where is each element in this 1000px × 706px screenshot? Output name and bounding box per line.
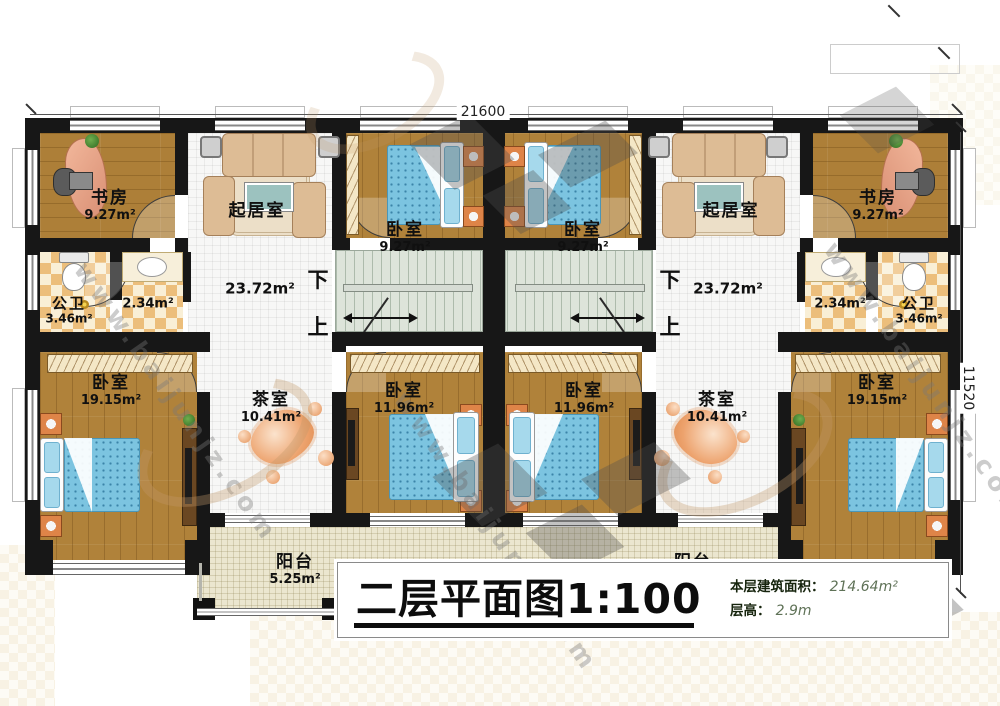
study-name: 书房 (91, 189, 129, 209)
wash-label: 2.34m² (122, 298, 173, 313)
wash-area: 2.34m² (814, 298, 865, 313)
wash-area: 2.34m² (122, 298, 173, 313)
toilet-tank (899, 252, 929, 263)
window-sill-top-living (683, 106, 773, 118)
tea-stool-a (737, 430, 750, 443)
tea-stool-a (238, 430, 251, 443)
toilet-bowl (62, 263, 86, 291)
study-plant (85, 134, 99, 148)
tea-room-area: 10.41m² (241, 410, 301, 425)
floor-area-value: 214.64m² (830, 579, 898, 595)
bedroom-mid-tv (348, 420, 355, 466)
window-sill-top-living (215, 106, 305, 118)
window-bedroom-mid-bottom (523, 516, 618, 526)
tea-stool-b (666, 402, 680, 416)
bedroom-small-nightstand-b (504, 206, 525, 227)
study-monitor (895, 172, 919, 190)
wall-bedroom-mid-bottom-a (618, 513, 656, 527)
study-label: 书房 9.27m² (852, 189, 903, 223)
floor-height-row: 层高： 2.9m (730, 599, 812, 619)
tea-room-name: 茶室 (698, 391, 736, 411)
bedroom-mid-tv (633, 420, 640, 466)
bedroom-small-nightstand-b (463, 206, 484, 227)
living-sofa-right (292, 182, 326, 238)
floor-height-label: 层高： (730, 603, 771, 619)
wall-wash-stub (797, 252, 805, 302)
bedroom-mid-wardrobe (350, 354, 480, 373)
window-bedroom-large-bottom (53, 563, 185, 575)
living-label: 起居室 (229, 202, 286, 222)
living-sofa-back (222, 133, 316, 177)
wall-bedroom-large-corner-l (25, 540, 53, 575)
stair-arrow-line (351, 317, 409, 319)
tea-room-area: 10.41m² (687, 410, 747, 425)
wall-center-party (494, 118, 505, 527)
living-side-table-left (200, 136, 222, 158)
wall-study-inner-b (800, 238, 813, 252)
dimension-top-value: 21600 (457, 104, 510, 120)
stair-down-text: 下 (308, 268, 329, 292)
window-sill-top-study (70, 106, 160, 118)
wall-tea-bottom-a (197, 513, 225, 527)
wall-below-stair (332, 332, 494, 346)
bedroom-mid-name: 卧室 (385, 382, 423, 402)
wall-center-party (483, 118, 494, 527)
bedroom-large-wardrobe (47, 354, 193, 373)
window-top-living (215, 120, 305, 131)
stair-up-text: 上 (308, 315, 329, 339)
bedroom-mid-name: 卧室 (565, 382, 603, 402)
wall-bedroom-mid-side-a (332, 346, 346, 352)
bedroom-small-nightstand-a (463, 146, 484, 167)
wash-sink (821, 257, 851, 277)
stair-up-text: 上 (660, 315, 681, 339)
living-name: 起居室 (229, 202, 286, 222)
wall-bedroom-mid-side-a (642, 346, 656, 352)
floor-plan-canvas: 书房 9.27m² 起居室 23.72m² 卧室 9.27m² 公卫 3.46m… (0, 0, 1000, 706)
wall-bedroom-mid-side-b (332, 392, 346, 513)
bath-area: 3.46m² (895, 313, 942, 327)
study-plant (889, 134, 903, 148)
tea-room-label: 茶室 10.41m² (687, 391, 747, 425)
bedroom-mid-label: 卧室 11.96m² (374, 382, 434, 416)
wall-wash-stub (183, 252, 191, 302)
tea-stool-d (266, 470, 280, 484)
balcony-name: 阳台 (276, 553, 314, 573)
bedroom-mid-wardrobe (508, 354, 638, 373)
stair-up-label: 上 (308, 315, 329, 339)
floor-area-label: 本层建筑面积： (730, 579, 825, 595)
bedroom-small-wardrobe (629, 135, 642, 235)
window-top-study (828, 120, 918, 131)
wall-above-stair-a (332, 238, 350, 250)
bedroom-large-headboard (924, 438, 948, 512)
drawing-title: 二层平面图1:100 (356, 565, 702, 625)
living-side-table-right (318, 136, 340, 158)
wall-study-inner-b (175, 238, 188, 252)
study-label: 书房 9.27m² (84, 189, 135, 223)
bath-label: 公卫 3.46m² (895, 295, 942, 326)
tea-room-label: 茶室 10.41m² (241, 391, 301, 425)
balcony-label: 阳台 5.25m² (269, 553, 320, 587)
bedroom-large-name: 卧室 (858, 374, 896, 394)
bedroom-large-plant (183, 414, 195, 426)
living-area-label: 23.72m² (693, 280, 763, 297)
window-top-living (683, 120, 773, 131)
bedroom-small-name: 卧室 (386, 221, 424, 241)
bedroom-mid-headboard (453, 412, 479, 502)
balcony-sliding-door (678, 515, 763, 523)
study-area: 9.27m² (84, 208, 135, 223)
window-side-bedroom-large (27, 390, 38, 500)
bedroom-large-nightstand-b (40, 515, 62, 537)
dimension-right-value: 11520 (960, 363, 976, 414)
bedroom-large-area: 19.15m² (81, 393, 141, 408)
window-sill-top-bedroom (528, 106, 628, 118)
window-side-study (27, 150, 38, 225)
bedroom-mid-label: 卧室 11.96m² (554, 382, 614, 416)
tea-stool-d (708, 470, 722, 484)
bath-label: 公卫 3.46m² (45, 295, 92, 326)
stair-handrail (515, 284, 645, 292)
stair-down-label: 下 (308, 268, 329, 292)
stair-down-label: 下 (660, 268, 681, 292)
bedroom-small-headboard (524, 142, 548, 228)
wall-tea-bottom-a (763, 513, 791, 527)
bedroom-small-nightstand-a (504, 146, 525, 167)
floor-height-value: 2.9m (776, 603, 812, 619)
window-top-study (70, 120, 160, 131)
balcony-area: 5.25m² (269, 572, 320, 587)
balcony-railing-side (199, 563, 202, 601)
wall-study-inner-a (800, 133, 813, 195)
living-area: 23.72m² (225, 280, 295, 297)
window-sill-study (12, 148, 25, 228)
study-monitor (69, 172, 93, 190)
tea-room-name: 茶室 (252, 391, 290, 411)
stair-arrowhead-right (409, 313, 418, 323)
window-sill-bedroom-large (12, 388, 25, 502)
wall-bath-row-bottom (778, 332, 963, 352)
stair-arrow-line (579, 317, 637, 319)
wall-tea-bottom-b (310, 513, 332, 527)
wall-bedroom-large-side-a (778, 338, 791, 352)
wall-tea-bottom-b (656, 513, 678, 527)
living-side-table-left (766, 136, 788, 158)
window-bedroom-mid-bottom (370, 516, 465, 526)
bath-area: 3.46m² (45, 313, 92, 327)
bath-name: 公卫 (902, 295, 936, 312)
window-sill-top-bedroom (360, 106, 460, 118)
wall-bath-row-bottom (25, 332, 210, 352)
stair-arrowhead-left (343, 313, 352, 323)
bedroom-mid-area: 11.96m² (374, 401, 434, 416)
bedroom-large-name: 卧室 (92, 374, 130, 394)
bedroom-large-headboard (40, 438, 64, 512)
bedroom-mid-headboard (509, 412, 535, 502)
living-sofa-back (672, 133, 766, 177)
toilet-tank (59, 252, 89, 263)
bedroom-small-label: 卧室 9.27m² (557, 221, 608, 255)
bedroom-large-plant (793, 414, 805, 426)
wall-bedroom-large-corner-r (185, 540, 210, 575)
wall-bedroom-large-side-a (197, 338, 210, 352)
bedroom-large-nightstand-b (926, 515, 948, 537)
living-sofa-right (662, 182, 696, 238)
living-label: 起居室 (703, 202, 760, 222)
wall-bedroom-mid-side-b (642, 392, 656, 513)
window-side-bath (27, 255, 38, 310)
window-sill-study (963, 148, 976, 228)
living-name: 起居室 (703, 202, 760, 222)
bedroom-large-nightstand-a (40, 413, 62, 435)
balcony-sliding-door (225, 515, 310, 523)
stair-up-label: 上 (660, 315, 681, 339)
wall-bedroom-large-side-b (778, 392, 791, 560)
leader-box-top-right (830, 44, 960, 74)
living-area-label: 23.72m² (225, 280, 295, 297)
wall-below-study (838, 238, 963, 252)
title-underline (354, 623, 694, 628)
wall-bedroom-large-side-b (197, 392, 210, 560)
toilet-bowl (902, 263, 926, 291)
bedroom-small-headboard (440, 142, 464, 228)
stair-arrowhead-left (636, 313, 645, 323)
bedroom-small-name: 卧室 (564, 221, 602, 241)
wash-label: 2.34m² (814, 298, 865, 313)
bedroom-small-area: 9.27m² (379, 240, 430, 255)
wall-bedroom-mid-bottom-a (332, 513, 370, 527)
tea-stool-c (654, 450, 670, 466)
bedroom-large-label: 卧室 19.15m² (847, 374, 907, 408)
window-top-bedroom-small (360, 120, 460, 131)
study-name: 书房 (859, 189, 897, 209)
bedroom-small-label: 卧室 9.27m² (379, 221, 430, 255)
wall-below-study (25, 238, 150, 252)
wall-below-stair (494, 332, 656, 346)
bath-name: 公卫 (52, 295, 86, 312)
floor-area-row: 本层建筑面积： 214.64m² (730, 575, 898, 595)
bedroom-large-tv (796, 448, 803, 504)
wall-above-stair-a (638, 238, 656, 250)
bedroom-large-wardrobe (795, 354, 941, 373)
stair-down-text: 下 (660, 268, 681, 292)
title-block: 二层平面图1:100 本层建筑面积： 214.64m² 层高： 2.9m (337, 562, 949, 638)
stair-handrail (343, 284, 473, 292)
window-top-bedroom-small (528, 120, 628, 131)
tea-stool-c (318, 450, 334, 466)
stair-arrowhead-right (570, 313, 579, 323)
window-sill-top-study (828, 106, 918, 118)
bedroom-mid-area: 11.96m² (554, 401, 614, 416)
living-area: 23.72m² (693, 280, 763, 297)
bedroom-small-wardrobe (346, 135, 359, 235)
wash-sink (137, 257, 167, 277)
wall-study-inner-a (175, 133, 188, 195)
tea-stool-b (308, 402, 322, 416)
study-area: 9.27m² (852, 208, 903, 223)
bedroom-large-nightstand-a (926, 413, 948, 435)
bedroom-large-tv (185, 448, 192, 504)
living-side-table-right (648, 136, 670, 158)
bedroom-small-area: 9.27m² (557, 240, 608, 255)
bedroom-large-area: 19.15m² (847, 393, 907, 408)
bedroom-large-label: 卧室 19.15m² (81, 374, 141, 408)
